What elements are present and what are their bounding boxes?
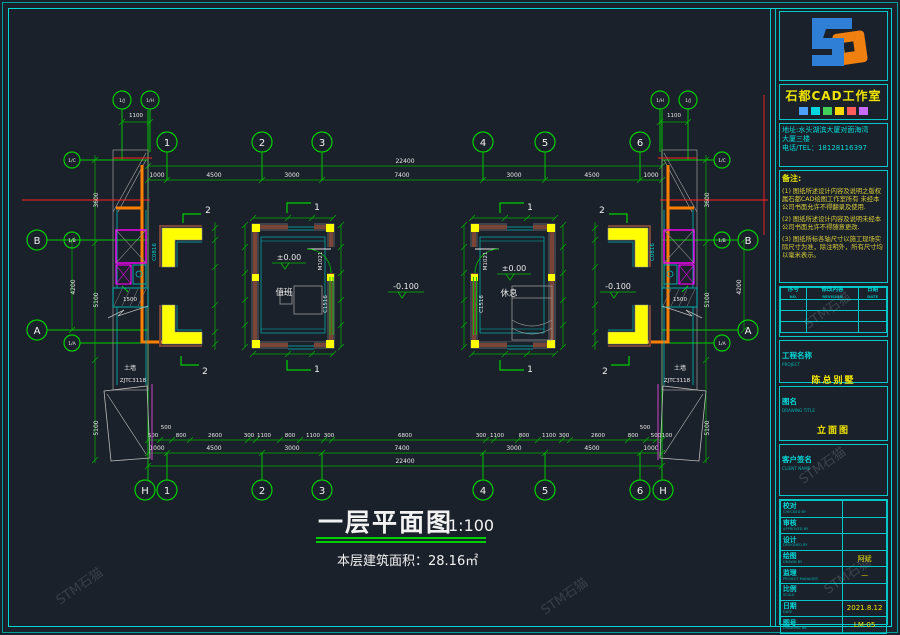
svg-text:800: 800 bbox=[285, 433, 296, 439]
svg-text:1/B: 1/B bbox=[718, 238, 725, 244]
brand-square-icon bbox=[835, 107, 844, 115]
svg-text:A: A bbox=[745, 326, 752, 337]
svg-text:1/C: 1/C bbox=[718, 158, 726, 164]
svg-text:1500: 1500 bbox=[123, 297, 137, 303]
svg-text:300: 300 bbox=[324, 433, 335, 439]
svg-text:休息: 休息 bbox=[500, 288, 518, 299]
svg-text:1500: 1500 bbox=[673, 297, 687, 303]
svg-text:1: 1 bbox=[527, 365, 533, 375]
cad-sheet: 12 34 56 H1 23 45 6H BA BA 1/C1/B 1/A 1/… bbox=[0, 0, 900, 635]
svg-text:C1516: C1516 bbox=[323, 295, 329, 313]
plan-area-note: 本层建筑面积：28.16㎡ bbox=[337, 553, 478, 569]
svg-text:2: 2 bbox=[202, 367, 208, 377]
svg-text:1000: 1000 bbox=[643, 445, 658, 452]
svg-text:±0.00: ±0.00 bbox=[502, 264, 527, 273]
svg-text:1/H: 1/H bbox=[146, 98, 154, 104]
svg-text:土墙: 土墙 bbox=[674, 364, 686, 372]
svg-text:800: 800 bbox=[628, 433, 639, 439]
svg-text:4: 4 bbox=[480, 486, 486, 497]
svg-text:B: B bbox=[745, 236, 752, 247]
svg-text:1100: 1100 bbox=[257, 433, 271, 439]
svg-text:5100: 5100 bbox=[704, 292, 711, 307]
axis-grid bbox=[47, 109, 738, 480]
svg-text:500: 500 bbox=[161, 425, 172, 431]
plan-title: 一层平面图 bbox=[318, 508, 453, 537]
project-label: 工程名称 bbox=[782, 351, 812, 360]
rev-row bbox=[781, 322, 887, 333]
svg-text:500: 500 bbox=[640, 425, 651, 431]
svg-text:1/H: 1/H bbox=[656, 98, 664, 104]
svg-text:4500: 4500 bbox=[584, 445, 599, 452]
field-row: 图号DRAWING No. LM-05 bbox=[781, 617, 887, 634]
svg-text:值班: 值班 bbox=[275, 287, 293, 298]
svg-text:C1516: C1516 bbox=[479, 295, 485, 313]
svg-text:3000: 3000 bbox=[506, 445, 521, 452]
field-row: 审核APPROVED BY bbox=[781, 517, 887, 534]
svg-text:H: H bbox=[659, 486, 667, 497]
svg-text:土墙: 土墙 bbox=[124, 364, 136, 372]
field-row: 监理PROJECT MANAGER — bbox=[781, 567, 887, 584]
svg-text:22400: 22400 bbox=[395, 458, 414, 465]
svg-text:5100: 5100 bbox=[93, 420, 100, 435]
drawing-viewport[interactable]: 12 34 56 H1 23 45 6H BA BA 1/C1/B 1/A 1/… bbox=[8, 8, 770, 627]
rev-row bbox=[781, 311, 887, 322]
svg-text:-0.100: -0.100 bbox=[393, 282, 419, 291]
phone-line: 电话/TEL：18128116397 bbox=[782, 144, 885, 153]
svg-text:22400: 22400 bbox=[395, 158, 414, 165]
svg-text:3: 3 bbox=[319, 486, 325, 497]
svg-text:ZJTC3118: ZJTC3118 bbox=[664, 378, 691, 384]
project-name: 陈总别墅 bbox=[782, 373, 885, 386]
svg-text:1/B: 1/B bbox=[68, 238, 75, 244]
drawing-caption: 一层平面图 1:100 本层建筑面积：28.16㎡ bbox=[316, 508, 494, 569]
company-name: 石都CAD工作室 bbox=[782, 87, 885, 104]
titleblock-divider-2 bbox=[775, 8, 776, 627]
svg-text:4200: 4200 bbox=[70, 279, 77, 294]
svg-text:5: 5 bbox=[542, 486, 548, 497]
svg-text:300: 300 bbox=[244, 433, 255, 439]
client-box: 客户签名 CLIENT NAME bbox=[779, 444, 888, 496]
svg-text:3000: 3000 bbox=[284, 445, 299, 452]
svg-text:2: 2 bbox=[602, 367, 608, 377]
drawing-title-box: 图名 DRAWING TITLE 立面图 bbox=[779, 386, 888, 441]
svg-text:M1021: M1021 bbox=[483, 252, 489, 271]
svg-text:4500: 4500 bbox=[206, 445, 221, 452]
note-item: (2) 图纸所述设计内容及说明未经本公司书面允许不得随意更改. bbox=[782, 216, 885, 232]
company-logo-icon bbox=[782, 14, 885, 78]
watermark-texts: STM石猫 STM石猫 bbox=[54, 565, 591, 618]
svg-text:1100: 1100 bbox=[542, 433, 556, 439]
svg-text:7400: 7400 bbox=[394, 445, 409, 452]
project-box: 工程名称 PROJECT 陈总别墅 bbox=[779, 340, 888, 383]
svg-text:6: 6 bbox=[637, 486, 643, 497]
room-rest bbox=[470, 222, 555, 351]
svg-text:-0.100: -0.100 bbox=[605, 282, 631, 291]
svg-text:M1021: M1021 bbox=[318, 252, 324, 271]
company-box: 石都CAD工作室 bbox=[779, 84, 888, 120]
svg-text:2600: 2600 bbox=[591, 433, 605, 439]
svg-text:3000: 3000 bbox=[506, 172, 521, 179]
address-line: 地址:水头湖滨大厦对面海湾 bbox=[782, 126, 885, 135]
rev-header: 修改内容REVISION bbox=[806, 288, 859, 300]
logo-box bbox=[779, 11, 888, 81]
svg-text:C0816: C0816 bbox=[650, 243, 656, 261]
svg-text:2: 2 bbox=[599, 206, 605, 216]
field-row: 校对CHECKED BY bbox=[781, 501, 887, 518]
svg-text:1100: 1100 bbox=[490, 433, 504, 439]
svg-text:1100: 1100 bbox=[129, 113, 143, 119]
svg-text:2600: 2600 bbox=[208, 433, 222, 439]
svg-text:7400: 7400 bbox=[394, 172, 409, 179]
svg-text:C0816: C0816 bbox=[152, 243, 158, 261]
address-line: 大厦三楼 bbox=[782, 135, 885, 144]
client-label-en: CLIENT NAME bbox=[782, 466, 885, 471]
svg-text:A: A bbox=[34, 326, 41, 337]
brand-color-squares bbox=[782, 107, 885, 115]
svg-text:3: 3 bbox=[319, 138, 325, 149]
brand-square-icon bbox=[847, 107, 856, 115]
svg-text:5100: 5100 bbox=[704, 420, 711, 435]
svg-text:1/J: 1/J bbox=[119, 98, 125, 104]
svg-text:1: 1 bbox=[164, 138, 170, 149]
titleblock-divider bbox=[770, 8, 771, 627]
revision-table-box: 序号NO. 修改内容REVISION 日期DATE bbox=[779, 286, 888, 337]
svg-text:1100: 1100 bbox=[306, 433, 320, 439]
svg-text:1100: 1100 bbox=[667, 113, 681, 119]
svg-text:4500: 4500 bbox=[584, 172, 599, 179]
brand-square-icon bbox=[823, 107, 832, 115]
field-row: 设计DESIGNED BY bbox=[781, 534, 887, 551]
svg-text:±0.00: ±0.00 bbox=[277, 253, 302, 262]
notes-title: 备注: bbox=[782, 173, 885, 184]
grid-bubbles bbox=[27, 91, 758, 500]
brand-square-icon bbox=[811, 107, 820, 115]
svg-text:300: 300 bbox=[476, 433, 487, 439]
svg-text:5100: 5100 bbox=[93, 292, 100, 307]
svg-text:4: 4 bbox=[480, 138, 486, 149]
svg-text:1000: 1000 bbox=[149, 172, 164, 179]
svg-text:STM石猫: STM石猫 bbox=[539, 575, 591, 618]
signoff-box: 校对CHECKED BY 审核APPROVED BY 设计DESIGNED BY… bbox=[779, 499, 888, 625]
drawing-title: 立面图 bbox=[782, 423, 885, 436]
svg-text:4200: 4200 bbox=[736, 279, 743, 294]
svg-text:H: H bbox=[141, 486, 149, 497]
svg-text:500: 500 bbox=[651, 433, 662, 439]
svg-text:300: 300 bbox=[559, 433, 570, 439]
client-label: 客户签名 bbox=[782, 455, 812, 464]
plan-scale: 1:100 bbox=[448, 516, 494, 535]
svg-text:800: 800 bbox=[176, 433, 187, 439]
brand-square-icon bbox=[799, 107, 808, 115]
address-box: 地址:水头湖滨大厦对面海湾 大厦三楼 电话/TEL：18128116397 bbox=[779, 123, 888, 167]
svg-text:1: 1 bbox=[164, 486, 170, 497]
drawing-title-label: 图名 bbox=[782, 397, 797, 406]
svg-text:1: 1 bbox=[314, 365, 320, 375]
svg-text:2: 2 bbox=[259, 486, 265, 497]
svg-text:4500: 4500 bbox=[206, 172, 221, 179]
rev-header: 序号NO. bbox=[781, 288, 807, 300]
note-item: (3) 图纸所标各轴尺寸以施工现场实际尺寸为准，除注明外，所有尺寸均以毫米表示。 bbox=[782, 236, 885, 260]
svg-text:1/J: 1/J bbox=[685, 98, 691, 104]
rev-row bbox=[781, 300, 887, 311]
svg-text:1: 1 bbox=[314, 203, 320, 213]
field-row: 日期DATE 2021.8.12 bbox=[781, 600, 887, 617]
svg-text:6800: 6800 bbox=[398, 433, 412, 439]
svg-text:1/A: 1/A bbox=[718, 341, 726, 347]
plan-labels: 值班 休息 M1021 M1021 C1516 C1516 C0816 C081… bbox=[120, 243, 691, 384]
notes-box: 备注: (1) 图纸所述设计内容及说明之版权属石都CAD绘图工作室所有 未经本公… bbox=[779, 170, 888, 283]
svg-text:B: B bbox=[34, 236, 41, 247]
drawing-title-label-en: DRAWING TITLE bbox=[782, 408, 885, 413]
svg-text:1/A: 1/A bbox=[68, 341, 76, 347]
svg-text:100: 100 bbox=[662, 433, 673, 439]
svg-text:1: 1 bbox=[527, 203, 533, 213]
svg-text:2: 2 bbox=[259, 138, 265, 149]
svg-text:800: 800 bbox=[519, 433, 530, 439]
project-label-en: PROJECT bbox=[782, 362, 885, 367]
titleblock: 石都CAD工作室 地址:水头湖滨大厦对面海湾 大厦三楼 电话/TEL：18128… bbox=[779, 11, 888, 628]
svg-text:1000: 1000 bbox=[643, 172, 658, 179]
svg-text:ZJTC3118: ZJTC3118 bbox=[120, 378, 147, 384]
svg-text:STM石猫: STM石猫 bbox=[54, 565, 106, 608]
svg-text:6: 6 bbox=[637, 138, 643, 149]
svg-text:5: 5 bbox=[542, 138, 548, 149]
field-row: 绘图DRAWN BY 阿斌 bbox=[781, 550, 887, 567]
signoff-table: 校对CHECKED BY 审核APPROVED BY 设计DESIGNED BY… bbox=[780, 500, 887, 634]
brand-square-icon bbox=[859, 107, 868, 115]
rev-header: 日期DATE bbox=[859, 288, 887, 300]
svg-text:2: 2 bbox=[205, 206, 211, 216]
svg-text:1/C: 1/C bbox=[68, 158, 76, 164]
note-item: (1) 图纸所述设计内容及说明之版权属石都CAD绘图工作室所有 未经本公司书面允… bbox=[782, 188, 885, 212]
svg-text:3000: 3000 bbox=[284, 172, 299, 179]
field-row: 比例SCALE bbox=[781, 583, 887, 600]
revision-table: 序号NO. 修改内容REVISION 日期DATE bbox=[780, 287, 887, 333]
room-duty bbox=[252, 222, 336, 351]
